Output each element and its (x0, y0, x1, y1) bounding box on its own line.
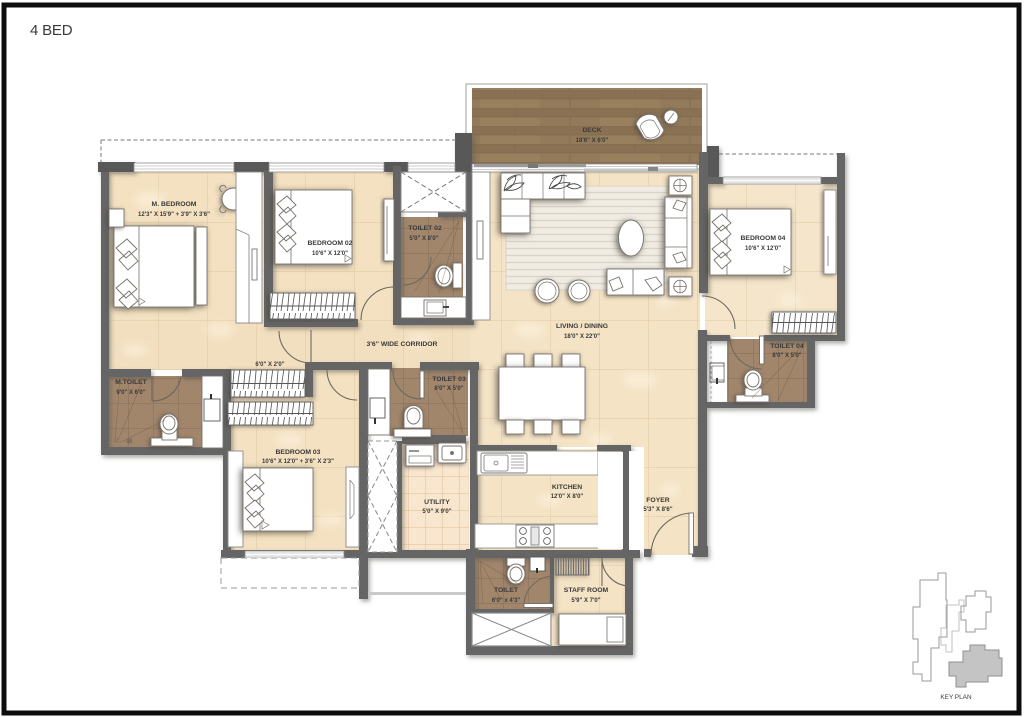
svg-text:UTILITY: UTILITY (424, 499, 450, 506)
svg-text:12'3" X 15'9" + 3'9" X 3'6": 12'3" X 15'9" + 3'9" X 3'6" (138, 212, 210, 218)
svg-text:8'0" X 5'0": 8'0" X 5'0" (434, 386, 463, 392)
svg-text:KITCHEN: KITCHEN (552, 484, 582, 491)
svg-text:M.TOILET: M.TOILET (115, 379, 147, 386)
svg-text:TOILET: TOILET (494, 587, 519, 594)
svg-text:KEY PLAN: KEY PLAN (940, 694, 972, 701)
svg-text:10'6" X 12'0": 10'6" X 12'0" (745, 246, 781, 252)
svg-text:9'0" X 6'0": 9'0" X 6'0" (116, 390, 145, 396)
svg-text:BEDROOM 04: BEDROOM 04 (741, 235, 786, 242)
svg-text:LIVING / DINING: LIVING / DINING (556, 323, 608, 330)
svg-text:18'6" X 6'0": 18'6" X 6'0" (576, 138, 609, 144)
svg-text:5'3" X 8'6": 5'3" X 8'6" (643, 507, 672, 513)
svg-text:FOYER: FOYER (646, 497, 670, 504)
svg-text:TOILET 02: TOILET 02 (408, 225, 442, 232)
svg-text:M. BEDROOM: M. BEDROOM (152, 201, 197, 208)
svg-text:BEDROOM 02: BEDROOM 02 (308, 240, 353, 247)
svg-text:5'9" X 7'0": 5'9" X 7'0" (571, 598, 600, 604)
svg-text:18'0" X 22'0": 18'0" X 22'0" (564, 334, 600, 340)
svg-text:5'0" X 8'0": 5'0" X 8'0" (409, 236, 438, 242)
svg-text:3'6" WIDE CORRIDOR: 3'6" WIDE CORRIDOR (367, 341, 438, 348)
svg-text:6'0" X 2'0": 6'0" X 2'0" (255, 362, 284, 368)
svg-text:6'0" x 4'3": 6'0" x 4'3" (492, 598, 521, 604)
svg-text:TOILET 03: TOILET 03 (432, 376, 466, 383)
svg-text:TOILET 04: TOILET 04 (770, 343, 804, 350)
svg-text:12'0" X 8'0": 12'0" X 8'0" (551, 494, 584, 500)
svg-text:DECK: DECK (582, 127, 601, 134)
svg-text:10'6" X 12'0" + 3'6" X 2'3": 10'6" X 12'0" + 3'6" X 2'3" (262, 459, 334, 465)
svg-text:STAFF ROOM: STAFF ROOM (564, 587, 609, 594)
svg-text:BEDROOM 03: BEDROOM 03 (276, 449, 321, 456)
svg-text:8'0" X 5'0": 8'0" X 5'0" (772, 353, 801, 359)
svg-text:5'0" X 9'0": 5'0" X 9'0" (422, 509, 451, 515)
svg-text:10'6" X 12'0": 10'6" X 12'0" (312, 251, 348, 257)
svg-text:4 BED: 4 BED (30, 22, 73, 39)
